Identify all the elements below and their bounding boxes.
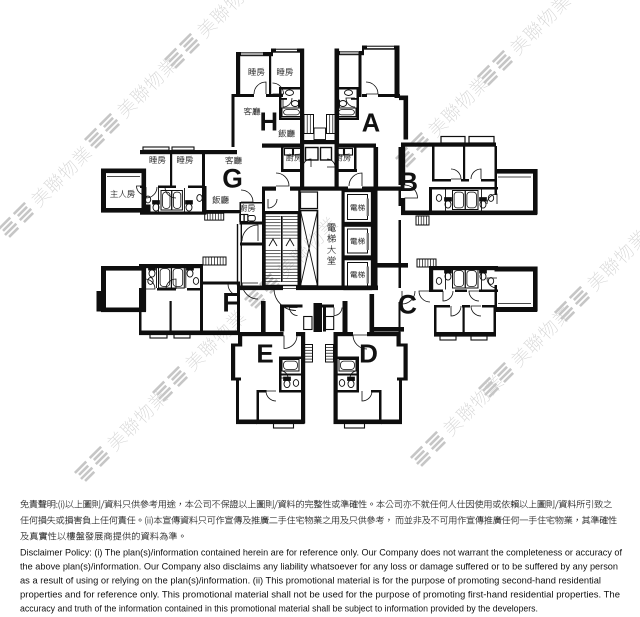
- svg-text:the above plan(s)/information.: the above plan(s)/information. Our Compa…: [20, 562, 618, 573]
- svg-text:accuracy and truth of the info: accuracy and truth of the information co…: [20, 604, 538, 615]
- svg-text:E: E: [256, 339, 273, 369]
- svg-text:D: D: [359, 339, 378, 369]
- svg-text:F: F: [222, 288, 238, 318]
- svg-text:as a result of using or relyin: as a result of using or relying on the p…: [20, 576, 601, 587]
- svg-text:B: B: [399, 167, 418, 197]
- svg-text:C: C: [398, 290, 417, 320]
- svg-text:A: A: [362, 110, 380, 138]
- svg-text:properties and for reference o: properties and for reference only. This …: [20, 590, 620, 601]
- svg-text:H: H: [260, 109, 278, 137]
- svg-text:Disclaimer Policy: (i) The pla: Disclaimer Policy: (i) The plan(s)/infor…: [20, 548, 622, 559]
- svg-text:G: G: [222, 164, 243, 194]
